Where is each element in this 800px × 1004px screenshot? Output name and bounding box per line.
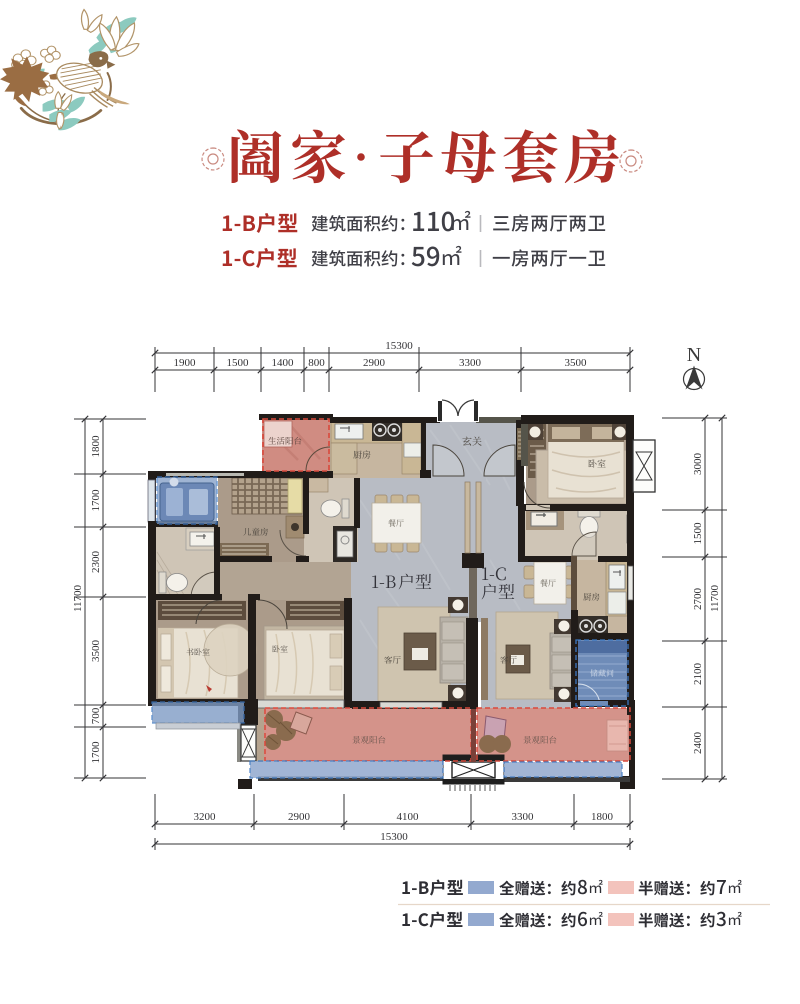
svg-text:3000: 3000	[692, 453, 704, 476]
svg-text:3500: 3500	[565, 357, 588, 369]
svg-text:3300: 3300	[459, 357, 482, 369]
svg-text:1700: 1700	[90, 489, 102, 512]
svg-text:1800: 1800	[591, 811, 614, 823]
svg-text:2900: 2900	[288, 811, 311, 823]
svg-text:N: N	[687, 344, 701, 366]
svg-text:1400: 1400	[272, 357, 295, 369]
svg-text:15300: 15300	[380, 831, 408, 843]
svg-text:3500: 3500	[90, 640, 102, 663]
svg-text:2900: 2900	[363, 357, 386, 369]
svg-text:4100: 4100	[397, 811, 420, 823]
svg-text:2300: 2300	[90, 551, 102, 574]
svg-text:11700: 11700	[709, 584, 721, 612]
svg-text:1500: 1500	[227, 357, 250, 369]
svg-text:2100: 2100	[692, 663, 704, 686]
svg-text:2700: 2700	[692, 588, 704, 611]
svg-text:3300: 3300	[512, 811, 535, 823]
svg-text:1700: 1700	[90, 741, 102, 764]
svg-text:3200: 3200	[194, 811, 217, 823]
svg-text:800: 800	[308, 357, 325, 369]
svg-text:1500: 1500	[692, 522, 704, 545]
svg-text:2400: 2400	[692, 732, 704, 755]
svg-text:11700: 11700	[72, 584, 84, 612]
svg-text:15300: 15300	[385, 340, 413, 352]
svg-text:1800: 1800	[90, 435, 102, 458]
svg-text:700: 700	[90, 707, 102, 724]
svg-text:1900: 1900	[174, 357, 197, 369]
